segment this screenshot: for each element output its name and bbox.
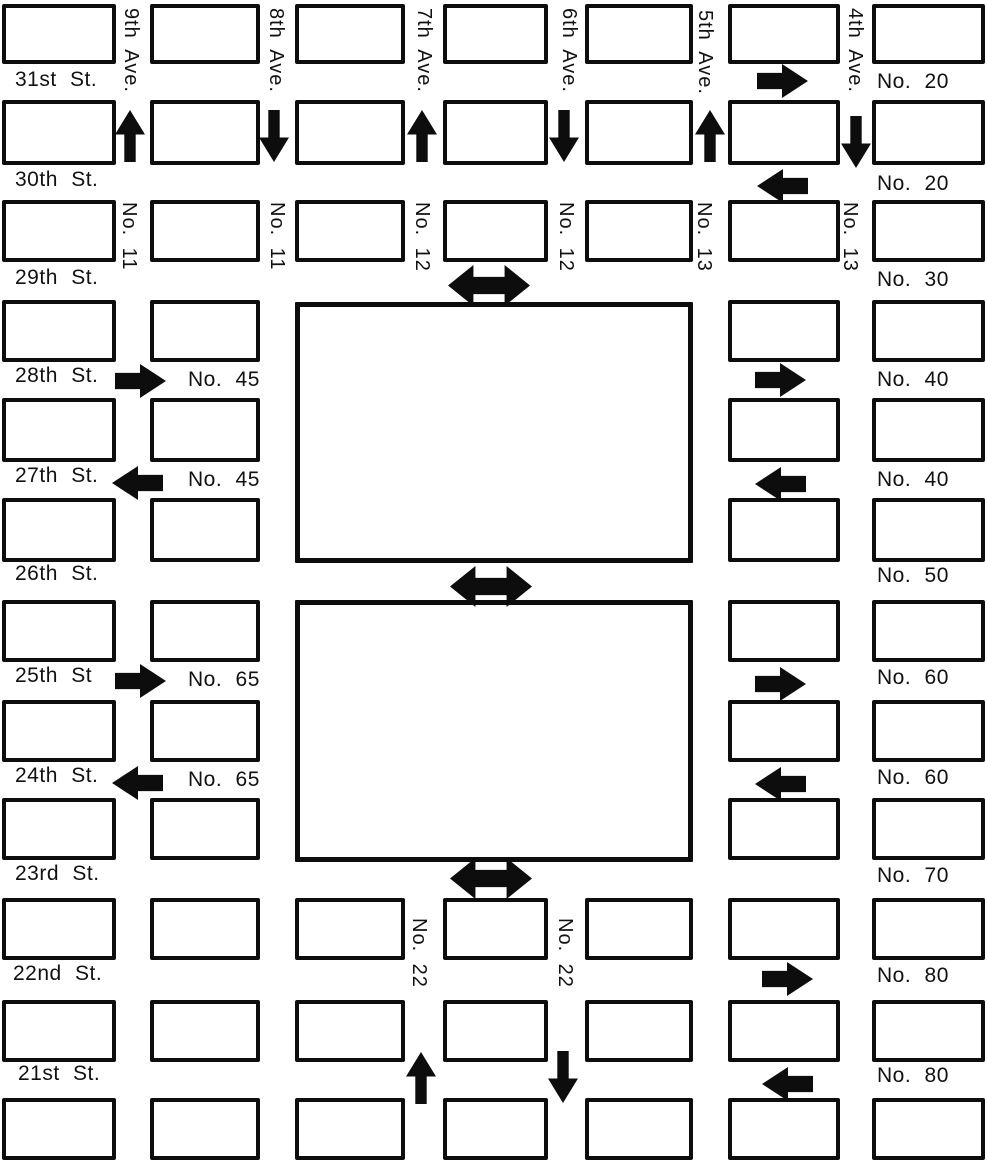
bus-route-number-label: No. 80 xyxy=(877,1064,949,1087)
street-label: 21st St. xyxy=(18,1062,100,1085)
park-superblock-1 xyxy=(295,302,693,563)
city-block-row3-col4 xyxy=(443,200,548,262)
city-block-row11-col1 xyxy=(2,1000,116,1062)
city-block-row10-col6 xyxy=(728,898,840,960)
city-block-row10-col1 xyxy=(2,898,116,960)
bus-route-number-label: No. 45 xyxy=(188,368,260,391)
arrow-west-27th-st-left-icon xyxy=(112,466,163,500)
street-label: 31st St. xyxy=(15,68,97,91)
city-block-row4-col7 xyxy=(872,300,985,362)
bus-route-number-label: No. 45 xyxy=(188,468,260,491)
street-label: 23rd St. xyxy=(15,862,100,885)
bus-route-number-label: No. 11 xyxy=(118,202,140,270)
avenue-label: 8th Ave. xyxy=(265,8,287,93)
city-block-row2-col4 xyxy=(443,100,548,165)
city-block-row9-col1 xyxy=(2,798,116,860)
arrow-up-5th-ave-icon xyxy=(695,110,725,162)
city-block-row11-col3 xyxy=(295,1000,405,1062)
city-block-row4-col6 xyxy=(728,300,840,362)
city-block-row8-col1 xyxy=(2,700,116,762)
city-block-row6-col7 xyxy=(872,498,985,562)
avenue-label: 7th Ave. xyxy=(413,8,435,93)
city-block-row11-col4 xyxy=(443,1000,548,1062)
city-block-row3-col7 xyxy=(872,200,985,262)
city-block-row1-col1 xyxy=(2,4,116,64)
city-block-row3-col2 xyxy=(150,200,260,262)
city-block-row1-col6 xyxy=(728,4,840,64)
arrow-west-24th-st-left-icon xyxy=(112,766,163,800)
city-block-row11-col5 xyxy=(585,1000,693,1062)
bus-route-number-label: No. 50 xyxy=(877,564,949,587)
arrow-down-6th-ave-south-icon xyxy=(548,1051,578,1103)
city-block-row11-col2 xyxy=(150,1000,260,1062)
city-block-row9-col6 xyxy=(728,798,840,860)
street-grid-map: 31st St.30th St.29th St.28th St.27th St.… xyxy=(0,0,987,1165)
arrow-up-7th-ave-icon xyxy=(407,110,437,162)
city-block-row7-col6 xyxy=(728,600,840,662)
street-label: 27th St. xyxy=(15,464,98,487)
street-label: 22nd St. xyxy=(13,962,102,985)
city-block-row8-col7 xyxy=(872,700,985,762)
city-block-row1-col3 xyxy=(295,4,405,64)
street-label: 26th St. xyxy=(15,562,98,585)
arrow-east-31st-st-icon xyxy=(757,64,808,98)
city-block-row2-col7 xyxy=(872,100,985,165)
bus-route-number-label: No. 12 xyxy=(411,202,433,272)
bus-route-number-label: No. 65 xyxy=(188,768,260,791)
bus-route-number-label: No. 22 xyxy=(408,918,430,988)
avenue-label: 6th Ave. xyxy=(558,8,580,93)
city-block-row1-col7 xyxy=(872,4,985,64)
street-label: 29th St. xyxy=(15,266,98,289)
city-block-row12-col4 xyxy=(443,1098,548,1160)
arrow-east-28th-st-right-icon xyxy=(755,363,806,397)
city-block-row9-col2 xyxy=(150,798,260,860)
bus-route-number-label: No. 22 xyxy=(554,918,576,988)
arrow-east-28th-st-left-icon xyxy=(115,364,166,398)
arrow-up-7th-ave-south-icon xyxy=(406,1052,436,1104)
arrow-down-8th-ave-icon xyxy=(259,110,289,162)
arrow-west-30th-st-icon xyxy=(757,169,808,203)
park-superblock-2 xyxy=(295,600,693,862)
city-block-row7-col1 xyxy=(2,600,116,662)
street-label: 28th St. xyxy=(15,364,98,387)
city-block-row6-col1 xyxy=(2,498,116,562)
city-block-row11-col7 xyxy=(872,1000,985,1062)
city-block-row12-col6 xyxy=(728,1098,840,1160)
arrow-west-24th-st-right-icon xyxy=(755,767,806,801)
arrow-up-9th-ave-icon xyxy=(115,110,145,162)
city-block-row2-col3 xyxy=(295,100,405,165)
bus-route-number-label: No. 30 xyxy=(877,268,949,291)
city-block-row12-col1 xyxy=(2,1098,116,1160)
city-block-row3-col3 xyxy=(295,200,405,262)
city-block-row5-col1 xyxy=(2,398,116,462)
city-block-row1-col5 xyxy=(585,4,693,64)
city-block-row4-col1 xyxy=(2,300,116,362)
city-block-row7-col7 xyxy=(872,600,985,662)
avenue-label: 4th Ave. xyxy=(844,8,866,93)
city-block-row5-col7 xyxy=(872,398,985,462)
city-block-row6-col2 xyxy=(150,498,260,562)
city-block-row1-col2 xyxy=(150,4,260,64)
arrow-east-25th-st-left-icon xyxy=(115,664,166,698)
street-label: 25th St xyxy=(15,664,92,687)
arrow-down-4th-ave-icon xyxy=(841,116,871,168)
arrow-west-27th-st-right-icon xyxy=(755,467,806,501)
bus-route-number-label: No. 70 xyxy=(877,864,949,887)
street-label: 24th St. xyxy=(15,764,98,787)
city-block-row8-col2 xyxy=(150,700,260,762)
city-block-row2-col5 xyxy=(585,100,693,165)
city-block-row2-col1 xyxy=(2,100,116,165)
city-block-row10-col5 xyxy=(585,898,693,960)
city-block-row12-col3 xyxy=(295,1098,405,1160)
bus-route-number-label: No. 40 xyxy=(877,368,949,391)
city-block-row12-col5 xyxy=(585,1098,693,1160)
city-block-row9-col7 xyxy=(872,798,985,860)
city-block-row5-col6 xyxy=(728,398,840,462)
city-block-row10-col3 xyxy=(295,898,405,960)
arrow-east-25th-st-right-icon xyxy=(755,667,806,701)
city-block-row4-col2 xyxy=(150,300,260,362)
bus-route-number-label: No. 40 xyxy=(877,468,949,491)
bus-route-number-label: No. 60 xyxy=(877,666,949,689)
bus-route-number-label: No. 65 xyxy=(188,668,260,691)
city-block-row3-col5 xyxy=(585,200,693,262)
city-block-row8-col6 xyxy=(728,700,840,762)
arrow-two-way-23rd-st-icon xyxy=(450,858,532,899)
city-block-row1-col4 xyxy=(443,4,548,64)
city-block-row3-col6 xyxy=(728,200,840,262)
city-block-row10-col7 xyxy=(872,898,985,960)
bus-route-number-label: No. 80 xyxy=(877,964,949,987)
arrow-west-21st-st-icon xyxy=(762,1067,813,1101)
city-block-row2-col6 xyxy=(728,100,840,165)
city-block-row7-col2 xyxy=(150,600,260,662)
city-block-row12-col7 xyxy=(872,1098,985,1160)
bus-route-number-label: No. 11 xyxy=(266,202,288,270)
bus-route-number-label: No. 13 xyxy=(693,202,715,272)
city-block-row10-col4 xyxy=(443,898,548,960)
avenue-label: 5th Ave. xyxy=(694,10,716,95)
city-block-row5-col2 xyxy=(150,398,260,462)
city-block-row12-col2 xyxy=(150,1098,260,1160)
bus-route-number-label: No. 60 xyxy=(877,766,949,789)
avenue-label: 9th Ave. xyxy=(120,8,142,93)
arrow-down-6th-ave-icon xyxy=(549,110,579,162)
bus-route-number-label: No. 12 xyxy=(555,202,577,272)
bus-route-number-label: No. 13 xyxy=(839,202,861,272)
arrow-two-way-29th-st-icon xyxy=(448,265,530,306)
city-block-row2-col2 xyxy=(150,100,260,165)
city-block-row10-col2 xyxy=(150,898,260,960)
city-block-row6-col6 xyxy=(728,498,840,562)
city-block-row11-col6 xyxy=(728,1000,840,1062)
bus-route-number-label: No. 20 xyxy=(877,172,949,195)
arrow-east-22nd-st-icon xyxy=(762,962,813,996)
street-label: 30th St. xyxy=(15,168,98,191)
bus-route-number-label: No. 20 xyxy=(877,70,949,93)
city-block-row3-col1 xyxy=(2,200,116,262)
